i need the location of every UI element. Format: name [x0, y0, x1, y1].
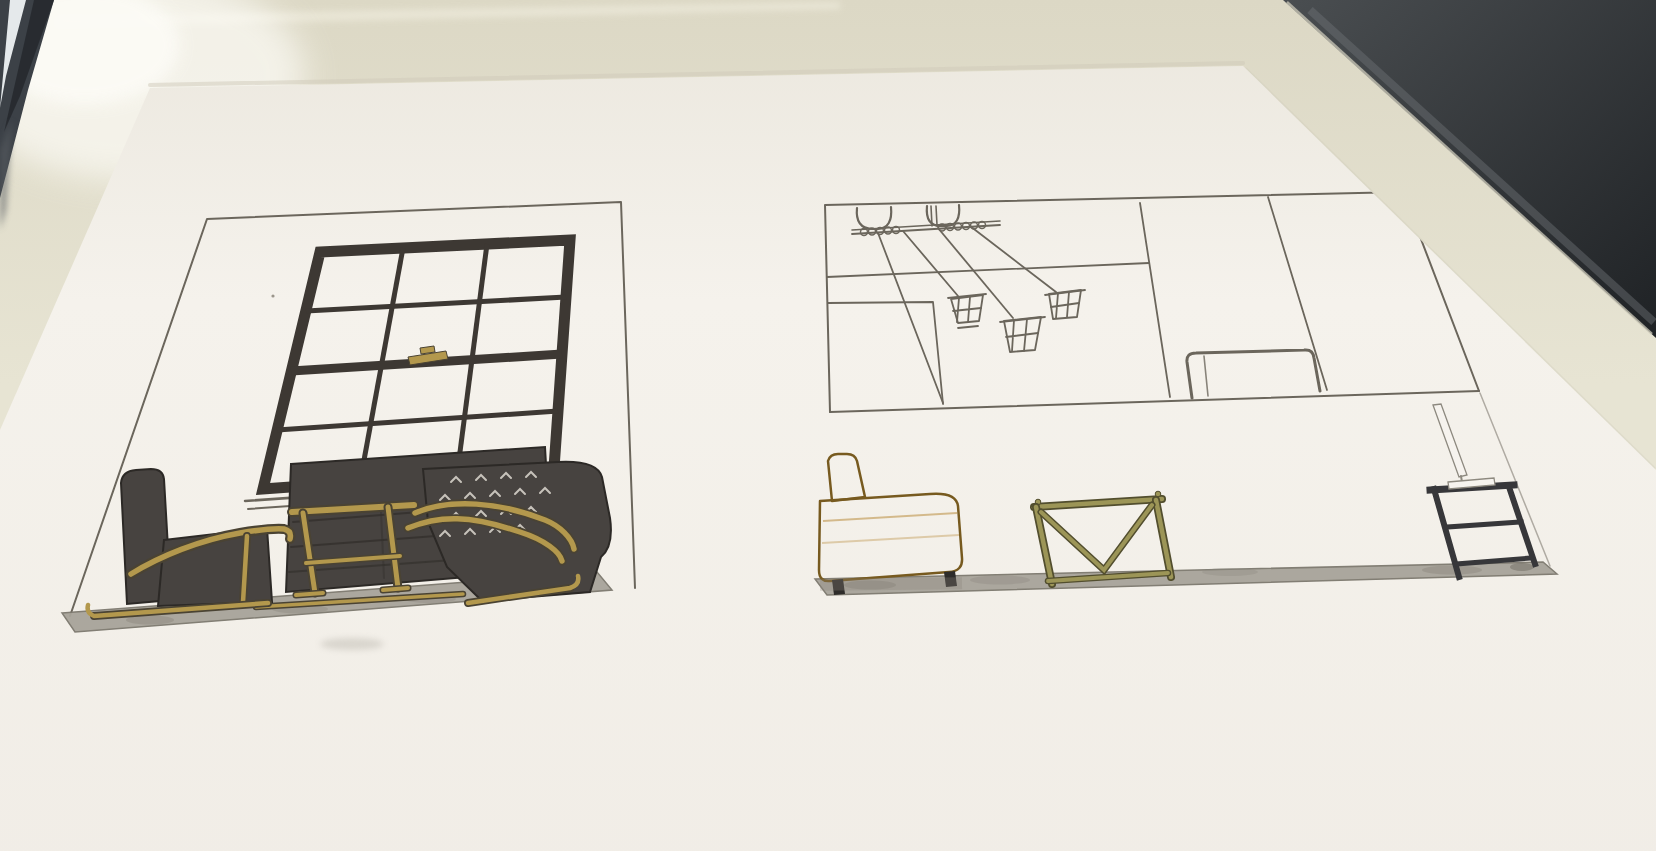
photo-canvas — [0, 0, 1656, 851]
floor-smudge — [320, 638, 384, 650]
console-knob — [1155, 491, 1161, 497]
paper-speck — [271, 294, 274, 297]
sofa-floor-shadow — [820, 577, 962, 590]
photo-of-sketches: Two hand-drawn interior design elevation… — [0, 0, 1656, 851]
